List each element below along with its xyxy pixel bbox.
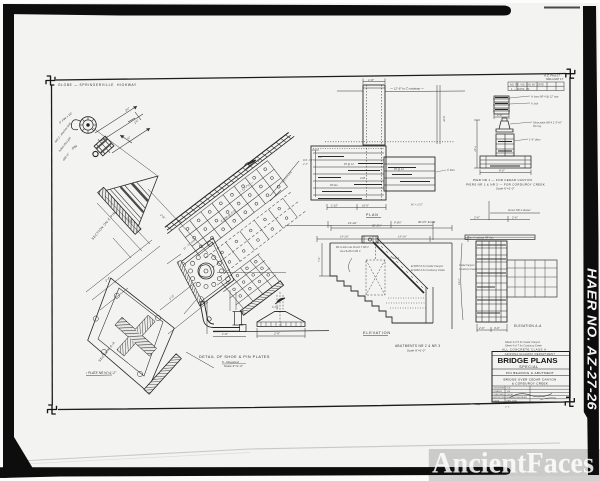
svg-text:½" exp jt: ½" exp jt: [389, 256, 399, 260]
svg-text:sta 13+06.3 NR 3: sta 13+06.3 NR 3: [340, 249, 361, 253]
svg-text:#5 @ 12: #5 @ 12: [394, 167, 404, 171]
svg-text:ABUTMENTS NR 2 & NR 3: ABUTMENTS NR 2 & NR 3: [395, 344, 440, 348]
svg-text:Ć Pier: Ć Pier: [447, 167, 456, 172]
svg-text:9'-0½": 9'-0½": [394, 221, 403, 225]
svg-text:30'-2½" E to E: 30'-2½" E to E: [418, 220, 435, 224]
svg-text:¾ bolt: ¾ bolt: [531, 102, 538, 106]
svg-text:HAER NO. AZ-27-26: HAER NO. AZ-27-26: [585, 268, 599, 411]
svg-text:El 6057.0 for Cedar Canyon: El 6057.0 for Cedar Canyon: [411, 264, 444, 268]
svg-text:J.M.: J.M.: [507, 391, 512, 393]
svg-text:14'-1¼": 14'-1¼": [340, 235, 350, 239]
svg-text:APPROVED: APPROVED: [494, 396, 507, 399]
svg-text:Corduroy Creek: Corduroy Creek: [459, 268, 477, 271]
svg-text:SPECIAL: SPECIAL: [519, 365, 538, 369]
svg-text:1'-6" diam: 1'-6" diam: [529, 138, 541, 142]
svg-text:2'-3": 2'-3": [302, 163, 308, 166]
svg-text:& CORDUROY CREEK: & CORDUROY CREEK: [512, 382, 548, 386]
svg-text:FEB. 1936: FEB. 1936: [507, 400, 518, 402]
svg-text:ALL CONCRETE CLASS A: ALL CONCRETE CLASS A: [502, 348, 547, 352]
svg-text:2'-0": 2'-0": [273, 332, 281, 336]
svg-text:4-#8: 4-#8: [360, 176, 366, 180]
svg-text:¼ bars NR 4 @ 12" spa: ¼ bars NR 4 @ 12" spa: [531, 95, 559, 99]
svg-text:Grout NR 2 dowel: Grout NR 2 dowel: [508, 208, 531, 212]
svg-text:Top of roadway NR slab: Top of roadway NR slab: [468, 237, 494, 240]
svg-text:1'-6": 1'-6": [222, 332, 229, 336]
svg-text:DATE: DATE: [494, 399, 500, 402]
svg-text:R.B. 1'-3": R.B. 1'-3": [303, 159, 313, 162]
svg-text:El 6282.4 for Corduroy Creek: El 6282.4 for Corduroy Creek: [411, 268, 445, 272]
svg-text:DESIGNED: DESIGNED: [494, 388, 506, 390]
svg-text:PIER NR 1 — FOR CEDAR CANYON: PIER NR 1 — FOR CEDAR CANYON: [473, 178, 532, 182]
svg-text:#5 ties: #5 ties: [330, 183, 338, 187]
svg-text:ELEVATION A-A: ELEVATION A-A: [514, 324, 542, 328]
svg-text:GLOBE — SPRINGERVILLE HIGHWAY: GLOBE — SPRINGERVILLE HIGHWAY: [58, 83, 137, 87]
svg-text:32'-2½": 32'-2½": [372, 224, 382, 228]
svg-text:14'-1¼": 14'-1¼": [348, 221, 358, 225]
svg-text:BRIDGE PLANS: BRIDGE PLANS: [498, 356, 558, 365]
svg-text:Scale ¼"=1'-0": Scale ¼"=1'-0": [407, 349, 426, 353]
svg-text:⅝" × 1'-2": ⅝" × 1'-2": [411, 203, 424, 207]
svg-text:Cedar Canyon: Cedar Canyon: [459, 264, 475, 267]
svg-text:1 — NOTE JM: 1 — NOTE JM: [511, 87, 529, 91]
svg-text:2'-6": 2'-6": [473, 216, 481, 220]
svg-text:¹ PLATE NR ⅛"×1'-2": ¹ PLATE NR ⅛"×1'-2": [86, 371, 117, 375]
svg-text:Bk of abut sta 10+31.7 NR 2: Bk of abut sta 10+31.7 NR 2: [336, 245, 369, 249]
svg-text:Shoe plate NR 4 1'-3"×8": Shoe plate NR 4 1'-3"×8": [533, 121, 563, 125]
svg-text:14'-1¼": 14'-1¼": [398, 235, 408, 239]
svg-text:7 7: 7 7: [505, 405, 510, 409]
svg-text:Pin brg: Pin brg: [533, 124, 542, 128]
svg-text:2'-6": 2'-6": [511, 216, 519, 220]
svg-text:Sheet 3 of 5 for Cedar Canyon: Sheet 3 of 5 for Cedar Canyon: [505, 340, 541, 344]
svg-text:DETAIL OF SHOE & PIN PLATES: DETAIL OF SHOE & PIN PLATES: [199, 355, 270, 359]
svg-text:ELEVATION: ELEVATION: [363, 331, 391, 335]
svg-text:BRIDGE ENGINEER: BRIDGE ENGINEER: [507, 397, 528, 399]
svg-text:AncientFaces: AncientFaces: [432, 447, 594, 480]
svg-text:Scale 3"=1'-0": Scale 3"=1'-0": [224, 364, 244, 368]
svg-text:2'-0": 2'-0": [496, 113, 504, 117]
svg-text:NRH-FAP 17: NRH-FAP 17: [546, 77, 564, 81]
svg-text:— 12'-6" to Ć roadway —: — 12'-6" to Ć roadway —: [389, 86, 425, 91]
svg-text:2'-6": 2'-6": [478, 326, 486, 330]
svg-text:10'-0": 10'-0": [362, 203, 370, 207]
svg-text:14'-1": 14'-1": [457, 277, 461, 285]
svg-text:1'-6": 1'-6": [368, 78, 375, 82]
svg-text:O.R.: O.R.: [507, 388, 512, 390]
svg-text:PLAN: PLAN: [366, 213, 379, 217]
svg-text:#5 @ 12: #5 @ 12: [344, 162, 354, 166]
svg-text:CHECKED: CHECKED: [494, 394, 505, 396]
svg-text:Scale ½"=1'-0": Scale ½"=1'-0": [496, 187, 515, 191]
svg-text:NO RE VIS ION BY DATE: NO RE VIS ION BY DATE: [510, 83, 544, 87]
svg-text:DRAWN: DRAWN: [494, 390, 503, 393]
svg-text:9'-6": 9'-6": [442, 116, 446, 123]
svg-text:PIN BEARING & ABUTMENT: PIN BEARING & ABUTMENT: [506, 371, 554, 375]
svg-text:3-4: 3-4: [318, 155, 322, 159]
svg-text:1'-10": 1'-10": [331, 203, 339, 207]
